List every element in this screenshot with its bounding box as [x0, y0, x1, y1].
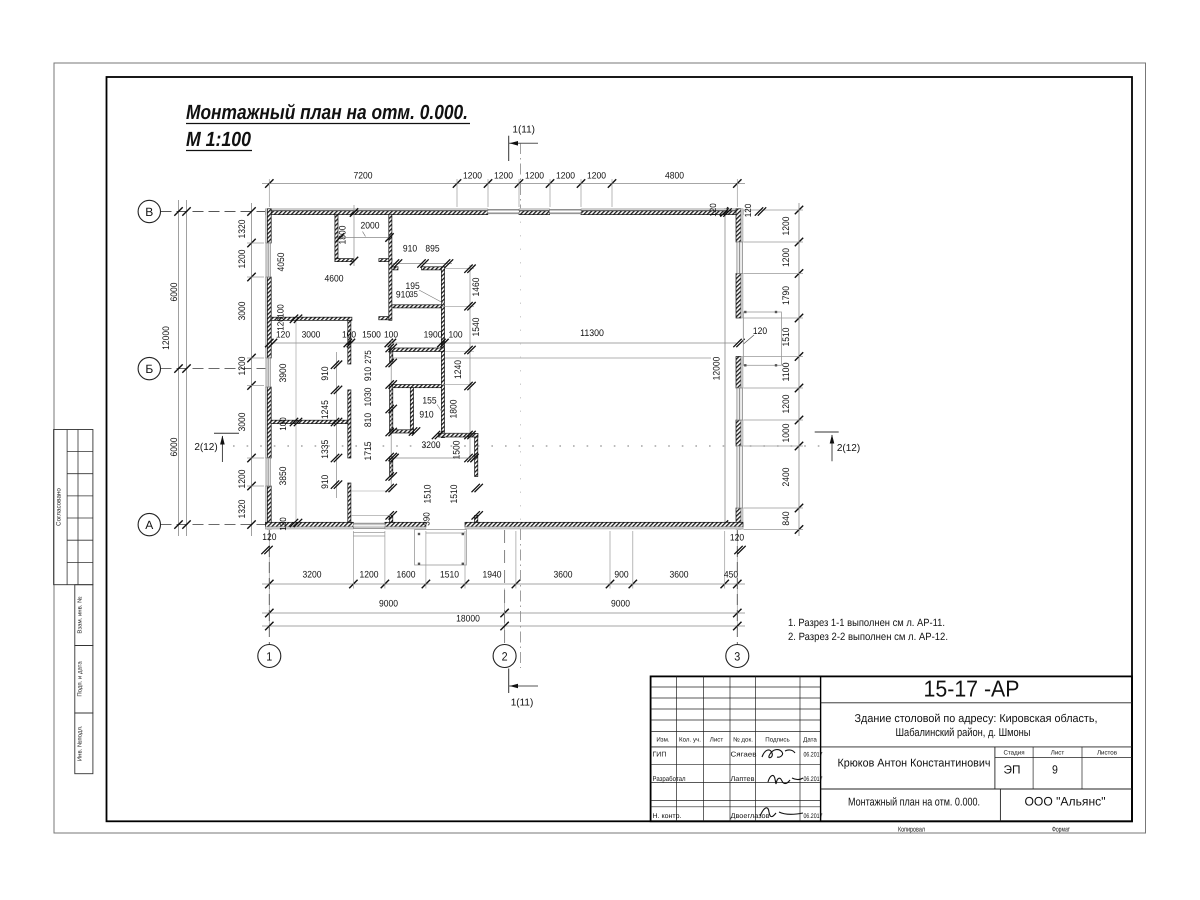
svg-text:1030: 1030 [363, 388, 374, 407]
svg-text:1320: 1320 [237, 220, 248, 239]
svg-text:1715: 1715 [363, 442, 374, 461]
svg-text:1500: 1500 [362, 330, 381, 340]
svg-text:3000: 3000 [302, 330, 321, 340]
svg-text:9: 9 [1052, 763, 1058, 777]
svg-text:1200: 1200 [237, 357, 248, 376]
svg-text:910: 910 [363, 367, 374, 381]
svg-text:120: 120 [730, 533, 744, 544]
svg-text:1940: 1940 [483, 570, 502, 581]
svg-text:В: В [145, 205, 153, 219]
svg-text:1510: 1510 [781, 328, 792, 347]
svg-text:9000: 9000 [611, 599, 630, 610]
svg-text:3850: 3850 [278, 467, 289, 486]
svg-text:1510: 1510 [423, 485, 434, 504]
svg-text:4800: 4800 [665, 171, 684, 182]
svg-text:2: 2 [502, 649, 508, 663]
svg-text:1540: 1540 [471, 318, 482, 337]
svg-text:275: 275 [363, 350, 373, 364]
svg-text:9000: 9000 [379, 599, 398, 610]
svg-text:ООО "Альянс": ООО "Альянс" [1025, 795, 1106, 809]
svg-text:3900: 3900 [278, 364, 289, 383]
svg-text:1: 1 [266, 649, 272, 663]
svg-text:910: 910 [419, 410, 433, 421]
svg-text:120: 120 [262, 532, 276, 543]
svg-text:4050: 4050 [276, 253, 287, 272]
svg-text:3200: 3200 [303, 570, 322, 581]
svg-text:100: 100 [276, 304, 286, 318]
svg-text:06.2017: 06.2017 [804, 813, 823, 820]
svg-text:Кол. уч.: Кол. уч. [679, 737, 701, 744]
svg-text:Лаптев: Лаптев [731, 776, 755, 783]
svg-text:1200: 1200 [781, 217, 792, 236]
svg-text:1(11): 1(11) [512, 125, 535, 136]
svg-text:Копировал: Копировал [898, 827, 925, 834]
svg-text:3200: 3200 [422, 440, 441, 451]
svg-text:12000: 12000 [161, 326, 172, 350]
svg-text:910: 910 [396, 290, 410, 301]
svg-text:Взам. инв. №: Взам. инв. № [77, 596, 84, 634]
svg-text:15-17 -АР: 15-17 -АР [924, 676, 1020, 702]
svg-text:3: 3 [734, 649, 740, 663]
svg-text:Н. контр.: Н. контр. [653, 813, 682, 820]
svg-text:100: 100 [278, 417, 288, 431]
svg-text:Лист: Лист [710, 737, 724, 744]
svg-text:1510: 1510 [440, 570, 459, 581]
svg-text:1(11): 1(11) [511, 698, 534, 709]
svg-text:3600: 3600 [554, 570, 573, 581]
svg-text:2400: 2400 [781, 468, 792, 487]
svg-text:1200: 1200 [237, 470, 248, 489]
svg-text:2. Разрез 2-2 выполнен см л. А: 2. Разрез 2-2 выполнен см л. АР-12. [788, 631, 948, 643]
svg-text:1200: 1200 [556, 171, 575, 181]
svg-text:910: 910 [403, 244, 417, 255]
svg-text:Монтажный план на отм. 0.000.: Монтажный план на отм. 0.000. [186, 101, 468, 124]
svg-text:12000: 12000 [712, 357, 723, 381]
svg-text:06.2017: 06.2017 [804, 752, 823, 759]
svg-text:910: 910 [320, 475, 331, 489]
svg-text:120: 120 [276, 317, 286, 331]
svg-text:1. Разрез 1-1 выполнен см л. А: 1. Разрез 1-1 выполнен см л. АР-11. [788, 617, 945, 629]
svg-text:1000: 1000 [781, 424, 792, 443]
svg-text:ГИП: ГИП [653, 752, 667, 759]
svg-text:Дата: Дата [803, 737, 817, 744]
svg-text:100: 100 [384, 330, 398, 340]
svg-text:Крюков Антон Константинович: Крюков Антон Константинович [838, 758, 991, 770]
svg-text:910: 910 [320, 366, 331, 380]
svg-text:1100: 1100 [781, 363, 792, 382]
svg-text:7200: 7200 [354, 171, 373, 182]
svg-text:100: 100 [448, 330, 462, 340]
svg-text:6000: 6000 [169, 438, 180, 457]
svg-text:Инв. №подл.: Инв. №подл. [77, 725, 84, 761]
svg-text:3600: 3600 [670, 570, 689, 581]
svg-text:1790: 1790 [781, 286, 792, 305]
svg-text:1500: 1500 [452, 441, 463, 460]
svg-text:840: 840 [781, 511, 792, 525]
svg-text:895: 895 [425, 244, 439, 255]
svg-text:1460: 1460 [471, 278, 482, 297]
svg-text:450: 450 [724, 570, 738, 581]
svg-text:1900: 1900 [424, 330, 443, 340]
svg-text:11300: 11300 [580, 328, 604, 339]
svg-text:120: 120 [708, 203, 718, 217]
svg-text:900: 900 [614, 570, 628, 581]
svg-text:3000: 3000 [237, 413, 248, 432]
svg-text:А: А [145, 518, 153, 532]
svg-text:390: 390 [422, 512, 432, 526]
svg-text:1200: 1200 [781, 395, 792, 414]
svg-text:100: 100 [342, 330, 356, 340]
svg-text:120: 120 [753, 326, 767, 337]
svg-text:2(12): 2(12) [194, 442, 217, 453]
svg-text:2(12): 2(12) [837, 443, 860, 454]
svg-text:Двоеглазов: Двоеглазов [731, 813, 770, 820]
svg-text:ЭП: ЭП [1004, 763, 1021, 777]
svg-text:Здание столовой по адресу: Кир: Здание столовой по адресу: Кировская обл… [855, 713, 1098, 725]
svg-text:1200: 1200 [781, 248, 792, 267]
svg-text:Сягаев: Сягаев [731, 752, 757, 759]
svg-text:1510: 1510 [449, 485, 460, 504]
svg-text:18000: 18000 [456, 614, 480, 625]
svg-text:1245: 1245 [320, 400, 331, 419]
svg-text:120: 120 [278, 517, 288, 531]
svg-text:6000: 6000 [169, 283, 180, 302]
svg-text:Шабалинский район, д. Шмоны: Шабалинский район, д. Шмоны [896, 727, 1031, 739]
svg-text:Монтажный план на отм. 0.000.: Монтажный план на отм. 0.000. [848, 797, 980, 809]
svg-text:Формат: Формат [1052, 827, 1071, 834]
svg-text:Листов: Листов [1097, 749, 1118, 756]
svg-text:1200: 1200 [237, 250, 248, 269]
svg-text:35: 35 [409, 289, 418, 299]
svg-text:№ док.: № док. [733, 737, 753, 744]
svg-text:4600: 4600 [325, 274, 344, 285]
svg-text:1335: 1335 [320, 440, 331, 459]
svg-text:Изм.: Изм. [656, 737, 670, 744]
svg-text:Подп. и дата: Подп. и дата [77, 661, 84, 697]
svg-text:Подпись: Подпись [765, 737, 790, 744]
svg-text:Разработал: Разработал [653, 775, 686, 783]
svg-text:Стадия: Стадия [1003, 749, 1024, 756]
svg-text:1600: 1600 [397, 570, 416, 581]
svg-text:06.2017: 06.2017 [804, 776, 823, 783]
svg-text:1320: 1320 [237, 500, 248, 519]
svg-text:155: 155 [422, 396, 436, 407]
svg-text:1200: 1200 [494, 171, 513, 181]
svg-text:1200: 1200 [587, 171, 606, 181]
svg-text:Согласовано: Согласовано [56, 488, 63, 526]
svg-text:1200: 1200 [360, 570, 379, 581]
svg-text:Б: Б [145, 362, 153, 376]
svg-text:1240: 1240 [453, 360, 464, 379]
svg-text:3000: 3000 [237, 302, 248, 321]
svg-text:М 1:100: М 1:100 [186, 128, 252, 151]
svg-text:810: 810 [363, 413, 374, 427]
svg-text:120: 120 [743, 204, 753, 218]
svg-text:1800: 1800 [449, 400, 460, 419]
svg-text:1200: 1200 [463, 171, 482, 181]
svg-text:2000: 2000 [361, 221, 380, 232]
svg-text:1200: 1200 [525, 171, 544, 181]
svg-text:Лист: Лист [1051, 749, 1065, 756]
